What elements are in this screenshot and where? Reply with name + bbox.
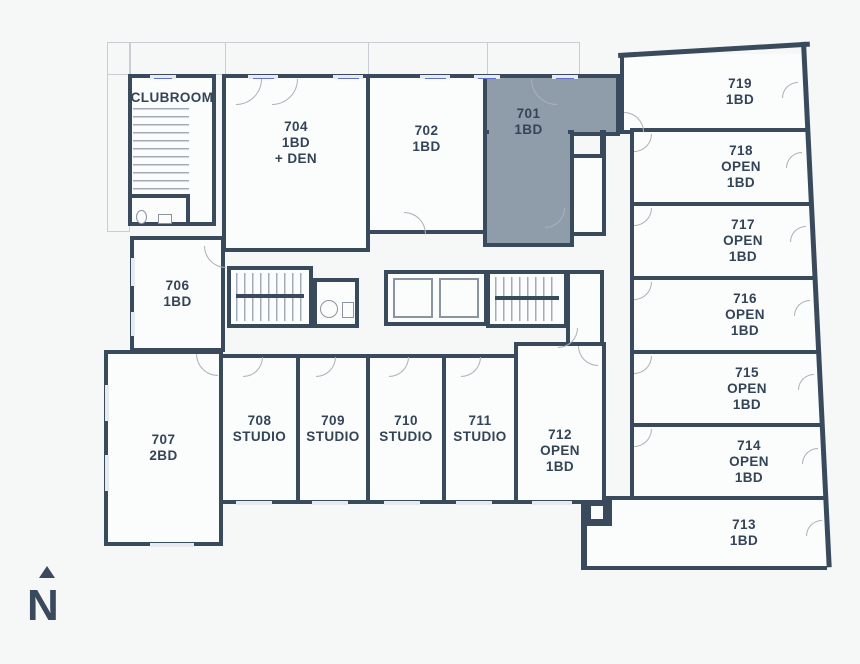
balcony-divider <box>368 42 369 75</box>
unit-718-room[interactable]: 718 OPEN 1BD <box>630 128 808 206</box>
unit-717-room[interactable]: 717 OPEN 1BD <box>630 202 812 280</box>
unit-type: 1BD <box>412 139 440 155</box>
wall-segment <box>600 130 606 158</box>
sink-icon <box>158 214 172 224</box>
unit-number: 708 <box>248 413 272 429</box>
window <box>552 75 578 79</box>
unit-713-room[interactable]: 713 1BD <box>581 496 827 570</box>
window <box>248 75 278 79</box>
unit-number: 704 <box>284 119 308 135</box>
unit-type: OPEN 1BD <box>729 454 769 486</box>
unit-710-room[interactable]: 710 STUDIO <box>366 354 446 504</box>
window <box>131 312 135 336</box>
window <box>150 75 176 79</box>
balcony-divider <box>225 42 226 75</box>
unit-number: 701 <box>517 106 541 122</box>
unit-712-room[interactable]: 712 OPEN 1BD <box>514 342 606 504</box>
window <box>384 501 420 505</box>
north-arrow-icon <box>39 566 55 578</box>
unit-711-room[interactable]: 711 STUDIO <box>442 354 518 504</box>
unit-type: STUDIO <box>379 429 432 445</box>
unit-number: 707 <box>152 432 176 448</box>
unit-type: 1BD <box>163 294 191 310</box>
unit-701-room[interactable] <box>483 130 574 247</box>
clubroom-label: CLUBROOM <box>131 90 214 106</box>
window <box>131 258 135 286</box>
unit-719-room[interactable]: 719 1BD <box>620 54 806 134</box>
unit-number: 717 <box>731 217 755 233</box>
unit-number: 715 <box>735 365 759 381</box>
stair-landing-wall <box>236 294 304 298</box>
unit-type: OPEN 1BD <box>540 443 580 475</box>
unit-716-room[interactable]: 716 OPEN 1BD <box>630 276 816 354</box>
balcony-divider <box>130 42 131 75</box>
unit-type: 1BD <box>514 122 542 138</box>
utility-box <box>342 302 354 318</box>
balcony-outline <box>107 42 130 232</box>
unit-type: 1BD <box>730 533 758 549</box>
unit-number: 714 <box>737 438 761 454</box>
unit-715-room[interactable]: 715 OPEN 1BD <box>630 350 820 427</box>
unit-number: 713 <box>732 517 756 533</box>
balcony-divider <box>487 42 488 75</box>
trash-chute-icon <box>320 300 338 318</box>
unit-709-room[interactable]: 709 STUDIO <box>296 354 370 504</box>
window <box>236 501 272 505</box>
utility-room <box>570 154 606 236</box>
toilet-icon <box>136 210 147 224</box>
unit-number: 711 <box>469 413 492 429</box>
unit-number: 710 <box>394 413 418 429</box>
elevator-car <box>393 278 433 318</box>
unit-type: 1BD + DEN <box>275 135 317 167</box>
window <box>105 385 109 421</box>
unit-number: 702 <box>415 123 439 139</box>
elevator-car <box>439 278 479 318</box>
unit-701-label: 701 1BD <box>483 102 574 142</box>
unit-number: 709 <box>321 413 345 429</box>
floor-plan: CLUBROOM 704 1BD + DEN 702 1BD 701 1BD 7… <box>0 0 860 664</box>
unit-type: OPEN 1BD <box>721 159 761 191</box>
stair-treads <box>133 108 189 200</box>
unit-number: 706 <box>166 278 190 294</box>
window <box>532 501 572 505</box>
unit-type: OPEN 1BD <box>727 381 767 413</box>
window <box>312 501 348 505</box>
wall-segment <box>581 500 587 568</box>
unit-702-room[interactable]: 702 1BD <box>366 74 487 234</box>
unit-number: 718 <box>729 143 753 159</box>
unit-708-room[interactable]: 708 STUDIO <box>219 354 300 504</box>
balcony-outline <box>107 42 580 75</box>
wall-notch <box>591 506 603 519</box>
unit-number: 712 <box>548 427 572 443</box>
unit-number: 716 <box>733 291 757 307</box>
window <box>420 75 450 79</box>
unit-type: STUDIO <box>306 429 359 445</box>
unit-type: STUDIO <box>453 429 506 445</box>
unit-type: OPEN 1BD <box>725 307 765 339</box>
window <box>105 455 109 491</box>
wall-segment <box>186 194 190 226</box>
north-label: N <box>27 584 59 628</box>
stair-landing-wall <box>495 296 559 300</box>
unit-type: 1BD <box>726 92 754 108</box>
unit-707-room[interactable]: 707 2BD <box>104 350 223 546</box>
window <box>150 543 194 547</box>
window <box>456 501 492 505</box>
window <box>474 75 500 79</box>
unit-number: 719 <box>728 76 752 92</box>
wall-segment <box>132 194 190 198</box>
unit-type: STUDIO <box>233 429 286 445</box>
unit-714-room[interactable]: 714 OPEN 1BD <box>630 423 824 500</box>
window <box>333 75 363 79</box>
unit-type: 2BD <box>149 448 177 464</box>
unit-type: OPEN 1BD <box>723 233 763 265</box>
